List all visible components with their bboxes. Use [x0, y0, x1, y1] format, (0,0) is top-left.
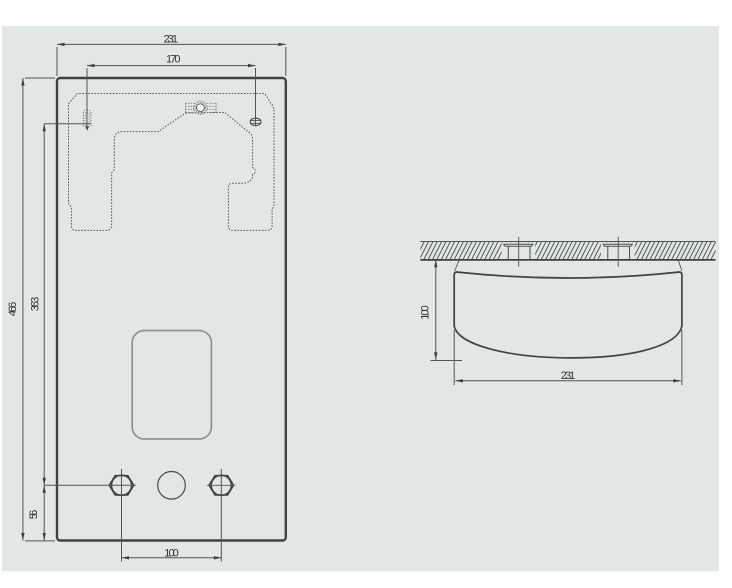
svg-text:231: 231 — [163, 33, 178, 45]
svg-text:100: 100 — [164, 548, 179, 560]
svg-text:466: 466 — [7, 302, 19, 317]
svg-text:363: 363 — [30, 297, 42, 312]
svg-text:231: 231 — [561, 370, 576, 382]
svg-text:56: 56 — [28, 510, 40, 520]
svg-text:100: 100 — [420, 305, 432, 320]
svg-text:170: 170 — [166, 54, 181, 66]
